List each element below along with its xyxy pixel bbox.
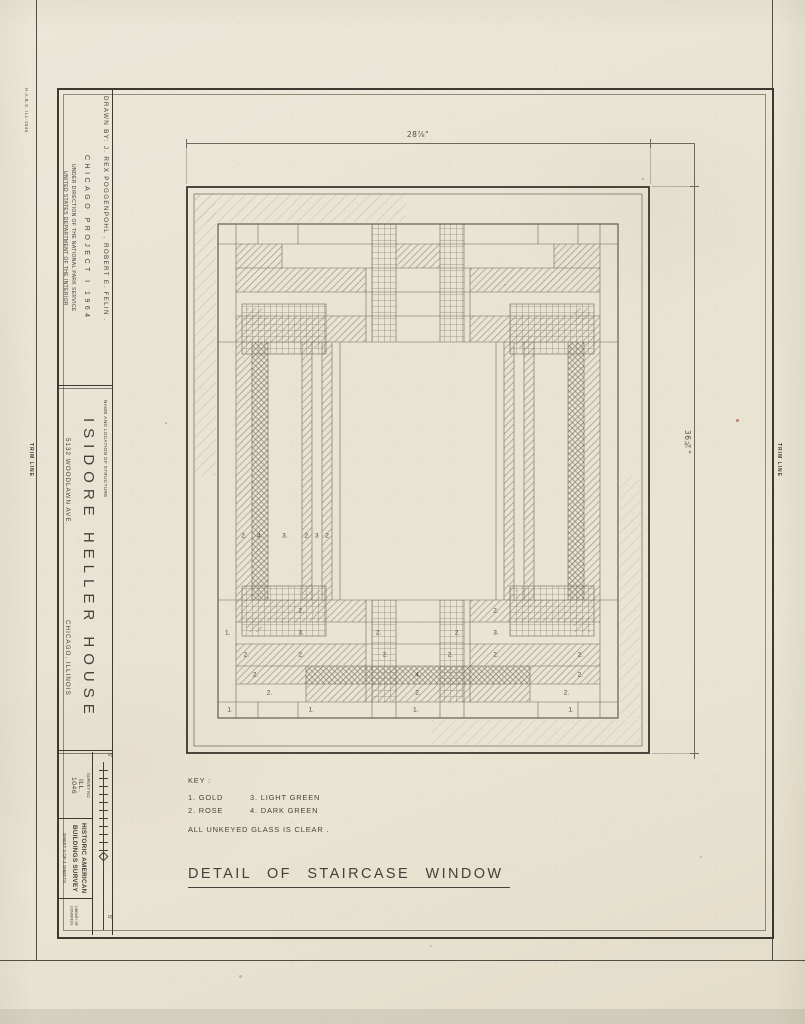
graphic-scale-ticks — [99, 770, 108, 851]
trim-line-left — [36, 0, 37, 960]
direction-caption: UNDER DIRECTION OF THE NATIONAL PARK SER… — [61, 92, 77, 384]
survey-number-label: SURVEY NO. — [85, 755, 91, 816]
bottom-trim-rule — [0, 960, 805, 961]
paper-speck — [504, 284, 506, 286]
sheet-info: SHEET 4 OF 4 SHEETS — [60, 821, 68, 896]
dimension-tick — [186, 139, 187, 148]
scan-edge-shadow — [0, 1009, 805, 1024]
width-dimension-label: 28⅞" — [338, 130, 498, 139]
paper-speck — [642, 178, 644, 180]
key-item-dark-green: 4. DARK GREEN — [250, 806, 329, 815]
key-note: ALL UNKEYED GLASS IS CLEAR . — [188, 825, 329, 834]
project-caption: CHICAGO PROJECT I 1964 — [80, 92, 92, 384]
direction-line-2: UNITED STATES DEPARTMENT OF THE INTERIOR — [61, 92, 69, 384]
extension-line — [650, 148, 651, 184]
trim-line-left-label: TRIM LINE — [28, 443, 34, 477]
staircase-window-drawing — [186, 186, 650, 754]
survey-number-value: ILL. 1046 — [70, 755, 84, 816]
edge-survey-mark: H.A.B.S. ILL-1046 — [24, 88, 29, 133]
paper-speck — [239, 975, 242, 978]
habs-sheet: TRIM LINE TRIM LINE H.A.B.S. ILL-1046 UN… — [0, 0, 805, 1024]
structure-address: 5132 WOODLAWN AVE. — [61, 392, 73, 572]
key-item-gold: 1. GOLD — [188, 793, 250, 802]
drawn-by-caption: DRAWN BY: J. REX POGGENPOHL , ROBERT E. … — [99, 92, 111, 388]
scale-column-divider — [92, 752, 93, 935]
scale-bottom-label: 5' — [106, 915, 112, 919]
dimension-line-height — [694, 143, 695, 759]
agency-name: HISTORIC AMERICAN BUILDINGS SURVEY — [70, 821, 88, 896]
agency-line-2: BUILDINGS SURVEY — [70, 821, 79, 896]
structure-name: ISIDORE HELLER HOUSE — [75, 392, 101, 746]
extension-line — [652, 753, 692, 754]
key-item-light-green: 3. LIGHT GREEN — [250, 793, 329, 802]
extension-line — [652, 186, 692, 187]
library-stamp: LIBRARY OF CONGRESS — [69, 901, 78, 931]
color-key: KEY : 1. GOLD 3. LIGHT GREEN 2. ROSE 4. … — [188, 776, 329, 834]
trim-line-right-label: TRIM LINE — [776, 443, 782, 477]
title-block-divider-thin — [57, 388, 112, 389]
key-item-rose: 2. ROSE — [188, 806, 250, 815]
stamp-box-divider — [57, 898, 92, 899]
structure-label: NAME AND LOCATION OF STRUCTURE — [101, 392, 109, 754]
drawing-title: DETAIL OF STAIRCASE WINDOW — [188, 866, 510, 888]
key-heading: KEY : — [188, 776, 329, 785]
scale-top-label: 5' — [106, 753, 112, 757]
height-dimension-label: 36¾" — [683, 430, 692, 454]
structure-city: CHICAGO, ILLINOIS — [61, 572, 73, 744]
dimension-line-width — [186, 143, 694, 144]
survey-box-divider — [57, 818, 92, 819]
direction-line-1: UNDER DIRECTION OF THE NATIONAL PARK SER… — [69, 92, 77, 384]
paper-speck — [700, 856, 702, 858]
agency-line-1: HISTORIC AMERICAN — [79, 821, 88, 896]
extension-line — [186, 148, 187, 184]
dimension-tick — [650, 139, 651, 148]
paper-speck — [430, 945, 432, 947]
paper-speck — [736, 419, 739, 422]
paper-speck — [165, 422, 167, 424]
